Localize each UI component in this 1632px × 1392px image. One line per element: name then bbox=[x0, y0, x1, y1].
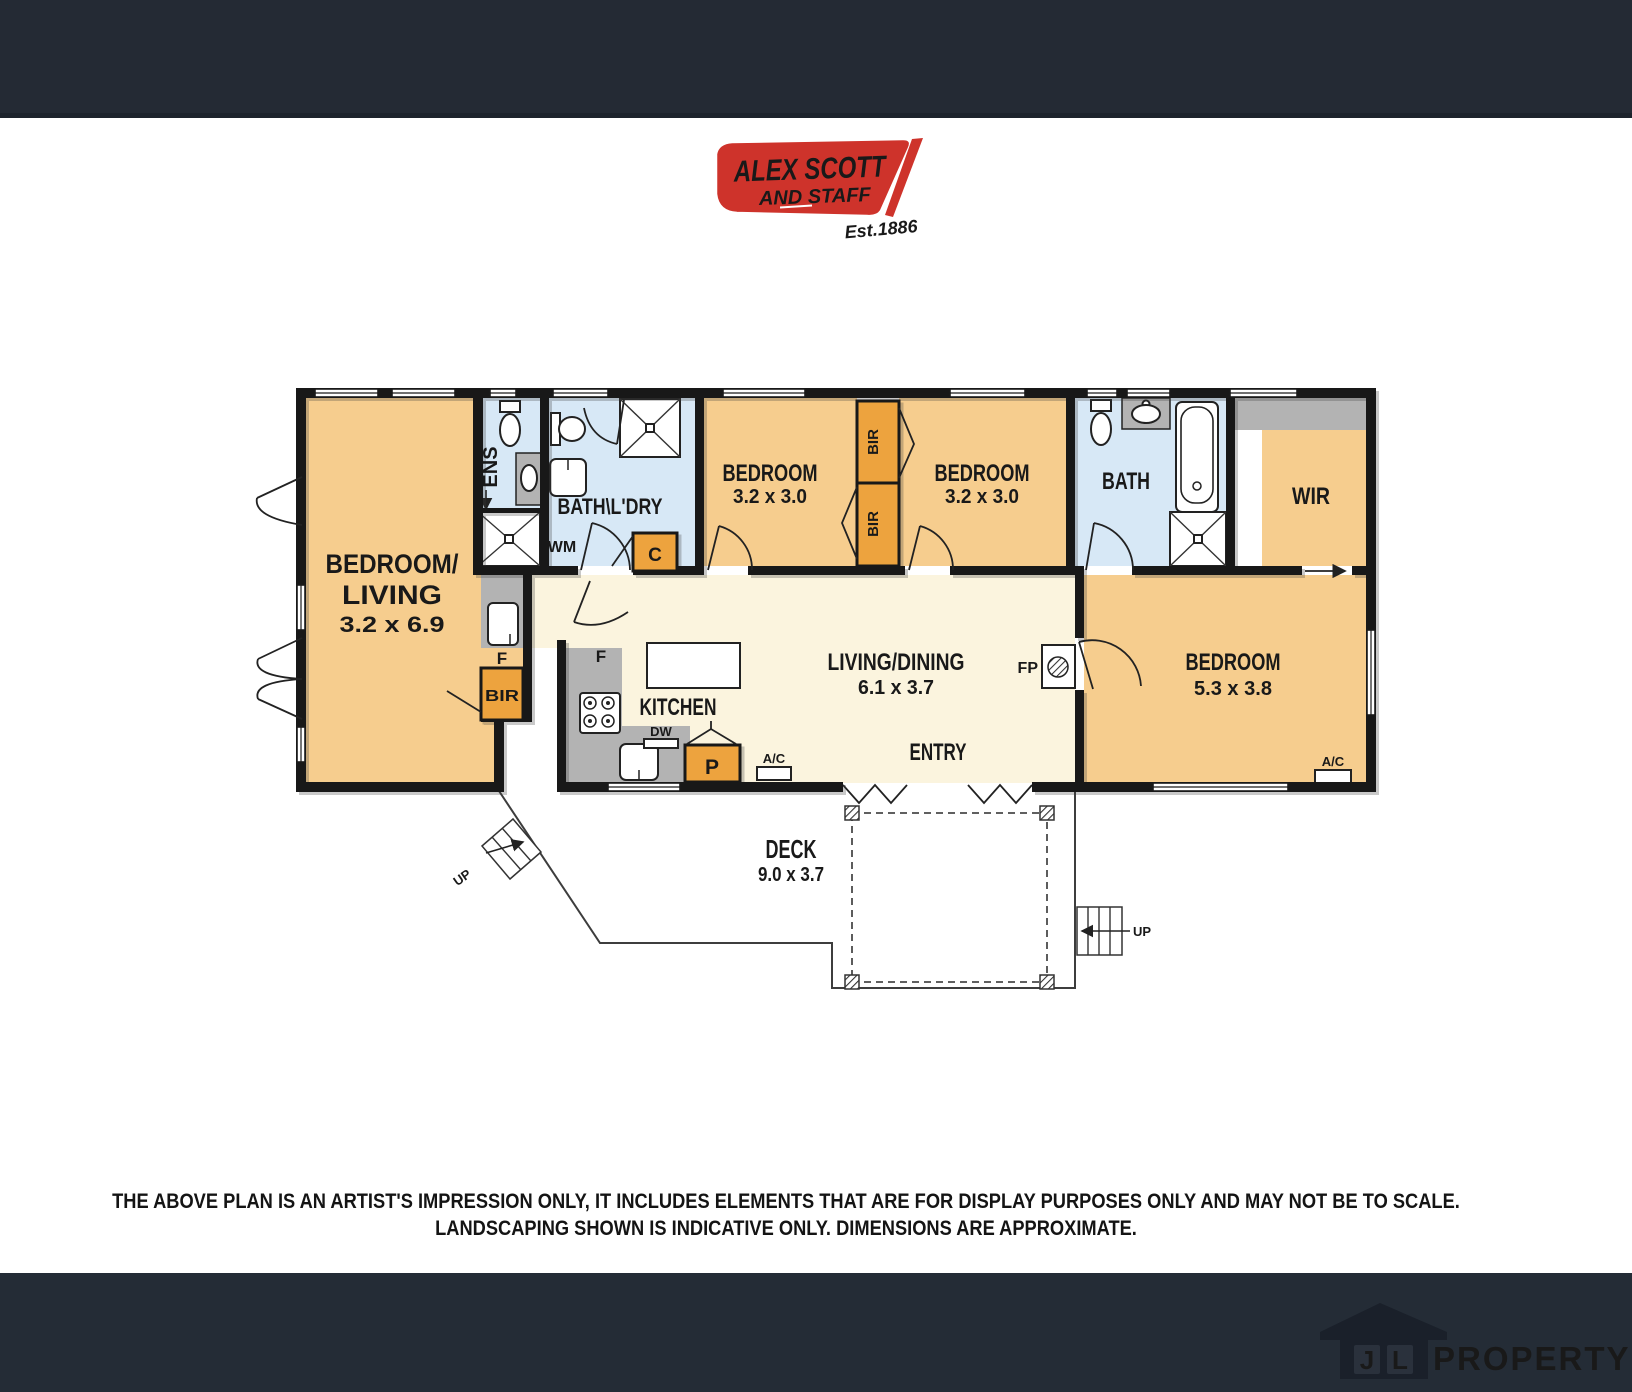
wall bbox=[1075, 690, 1084, 792]
room-dims: 9.0 x 3.7 bbox=[758, 864, 824, 886]
pergola-post bbox=[845, 806, 859, 820]
house-icon-roof bbox=[1320, 1303, 1447, 1340]
pergola-post bbox=[1040, 806, 1054, 820]
wall bbox=[557, 640, 566, 792]
window bbox=[297, 585, 305, 630]
kitchen-island bbox=[647, 643, 740, 688]
dishwasher bbox=[644, 739, 678, 748]
up-label: UP bbox=[1133, 924, 1151, 939]
pergola-dashed bbox=[852, 813, 1047, 982]
fridge-label: F bbox=[596, 647, 606, 666]
deck-stairs-right: UP bbox=[1077, 907, 1151, 955]
wall bbox=[1132, 566, 1302, 575]
room-dims: 6.1 x 3.7 bbox=[858, 677, 934, 699]
room-label: DECK bbox=[766, 834, 817, 864]
window bbox=[1087, 389, 1117, 397]
wall bbox=[1075, 566, 1084, 638]
kitchen-sink bbox=[620, 744, 658, 781]
room-label: KITCHEN bbox=[640, 694, 717, 721]
entry-bifold-door bbox=[843, 785, 907, 803]
ac-unit bbox=[1315, 770, 1351, 783]
window bbox=[553, 389, 608, 397]
window bbox=[490, 389, 516, 397]
property-watermark: J L PROPERTY bbox=[1280, 1273, 1632, 1392]
watermark-text: PROPERTY bbox=[1433, 1340, 1631, 1377]
window bbox=[950, 389, 1025, 397]
deck-stairs-left: UP bbox=[450, 819, 541, 889]
nook-sink bbox=[488, 603, 518, 645]
wall bbox=[296, 782, 504, 792]
window bbox=[1230, 389, 1297, 397]
room-dims: 5.3 x 3.8 bbox=[1194, 678, 1272, 700]
up-label: UP bbox=[450, 866, 474, 889]
ens-basin bbox=[516, 453, 542, 505]
fireplace-label: FP bbox=[1018, 660, 1039, 677]
wall bbox=[1366, 388, 1376, 792]
washing-machine-label: WM bbox=[548, 539, 576, 556]
ac-unit bbox=[757, 767, 791, 780]
window bbox=[1153, 783, 1288, 791]
room-label: ENS bbox=[480, 446, 502, 487]
room-label: ENTRY bbox=[910, 739, 967, 766]
ac-label: A/C bbox=[763, 751, 786, 766]
room-label: BEDROOM bbox=[723, 460, 818, 487]
room-label: BEDROOM bbox=[1186, 649, 1281, 676]
room-label: WIR bbox=[1292, 483, 1330, 510]
ens-shower bbox=[478, 512, 540, 566]
fridge-label: F bbox=[497, 649, 507, 668]
room-label: BATH bbox=[1102, 468, 1150, 495]
pergola-post bbox=[845, 975, 859, 989]
room-label: BATH\L'DRY bbox=[558, 494, 663, 519]
wall bbox=[950, 566, 1082, 575]
wall bbox=[1352, 566, 1376, 575]
fireplace bbox=[1042, 645, 1075, 688]
bath-shower bbox=[1170, 512, 1226, 566]
bath-ldry-basin bbox=[550, 459, 586, 496]
room-label: LIVING bbox=[342, 580, 442, 610]
footer-banner: J L PROPERTY bbox=[0, 1273, 1632, 1392]
room-label: LIVING/DINING bbox=[828, 649, 965, 676]
window bbox=[1127, 389, 1170, 397]
watermark-j: J bbox=[1360, 1345, 1374, 1375]
wall bbox=[296, 388, 1376, 398]
entry-bifold-door bbox=[968, 785, 1032, 803]
bir-label: BIR bbox=[865, 429, 882, 455]
disclaimer-line1: THE ABOVE PLAN IS AN ARTIST'S IMPRESSION… bbox=[102, 1188, 1470, 1215]
wall bbox=[695, 388, 704, 575]
window bbox=[315, 389, 378, 397]
window bbox=[297, 727, 305, 762]
dishwasher-label: DW bbox=[650, 724, 672, 739]
wall bbox=[494, 712, 504, 792]
room-dims: 3.2 x 3.0 bbox=[945, 486, 1019, 508]
bath-ldry-shower bbox=[620, 399, 680, 457]
disclaimer: THE ABOVE PLAN IS AN ARTIST'S IMPRESSION… bbox=[0, 1188, 1572, 1242]
wall bbox=[1066, 388, 1075, 575]
ac-label: A/C bbox=[1322, 754, 1345, 769]
bir-label: BIR bbox=[865, 511, 882, 537]
wall bbox=[478, 508, 540, 513]
bath-toilet bbox=[1091, 400, 1111, 445]
room-label: BEDROOM bbox=[935, 460, 1030, 487]
window bbox=[1367, 630, 1375, 715]
window bbox=[608, 783, 680, 791]
kitchen-stove bbox=[580, 693, 620, 733]
wall bbox=[473, 566, 578, 575]
wall bbox=[1226, 388, 1235, 575]
floor-plan: UP UP bbox=[0, 0, 1632, 1392]
cupboard-label: C bbox=[648, 545, 662, 566]
bathtub bbox=[1176, 402, 1218, 512]
bath-basin bbox=[1122, 398, 1170, 429]
room-label: BEDROOM/ bbox=[326, 549, 459, 579]
house-icon-body bbox=[1340, 1337, 1428, 1379]
room-dims: 3.2 x 3.0 bbox=[733, 486, 807, 508]
pergola-post bbox=[1040, 975, 1054, 989]
window bbox=[723, 389, 805, 397]
window bbox=[392, 389, 455, 397]
bir-label: BIR bbox=[485, 688, 520, 705]
watermark-l: L bbox=[1392, 1345, 1408, 1375]
pantry-label: P bbox=[705, 756, 719, 779]
deck-outline bbox=[499, 791, 1075, 988]
room-dims: 3.2 x 6.9 bbox=[340, 612, 445, 637]
ens-toilet bbox=[500, 401, 520, 446]
disclaimer-line2: LANDSCAPING SHOWN IS INDICATIVE ONLY. DI… bbox=[102, 1215, 1470, 1242]
